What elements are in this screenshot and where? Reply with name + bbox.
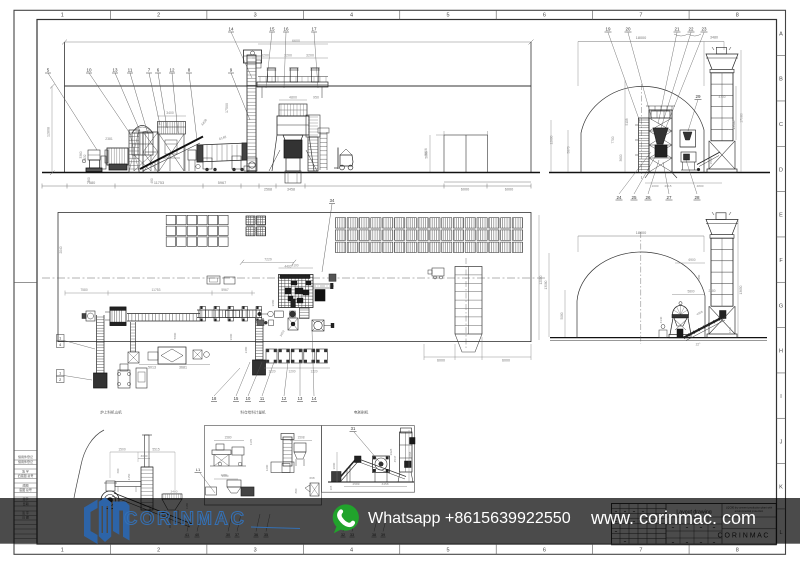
svg-text:11753: 11753	[152, 288, 161, 292]
svg-text:18000: 18000	[636, 231, 647, 235]
svg-text:26: 26	[645, 195, 651, 200]
svg-text:5967: 5967	[218, 181, 226, 185]
svg-text:3200: 3200	[306, 54, 314, 58]
svg-text:6000: 6000	[437, 359, 445, 363]
svg-text:7: 7	[639, 13, 642, 19]
svg-text:Whatsapp +8615639922550: Whatsapp +8615639922550	[368, 509, 571, 527]
svg-text:3480: 3480	[171, 490, 178, 494]
svg-text:20: 20	[625, 27, 631, 32]
svg-text:3: 3	[254, 548, 257, 554]
svg-text:31: 31	[351, 426, 356, 431]
svg-text:1: 1	[61, 548, 64, 554]
svg-text:3200: 3200	[261, 54, 269, 58]
svg-text:12800: 12800	[550, 135, 554, 144]
svg-text:7580: 7580	[80, 288, 88, 292]
svg-text:17: 17	[311, 27, 317, 32]
svg-text:底图: 底图	[22, 483, 28, 488]
svg-text:3: 3	[254, 13, 257, 19]
svg-text:签 字: 签 字	[22, 469, 29, 474]
svg-text:D: D	[779, 167, 783, 173]
svg-text:L1: L1	[196, 467, 201, 472]
svg-text:22°: 22°	[696, 343, 702, 347]
svg-text:1600: 1600	[222, 474, 229, 478]
svg-text:7: 7	[639, 548, 642, 554]
svg-text:3000: 3000	[332, 462, 336, 469]
svg-text:电耗刷机: 电耗刷机	[354, 410, 369, 415]
svg-text:13: 13	[112, 68, 118, 73]
svg-text:4547: 4547	[393, 455, 397, 462]
svg-text:17080: 17080	[740, 113, 744, 123]
svg-text:950: 950	[313, 96, 319, 100]
svg-text:14: 14	[228, 27, 234, 32]
svg-text:5: 5	[446, 13, 449, 19]
svg-text:5806: 5806	[424, 148, 428, 156]
svg-text:8: 8	[736, 548, 739, 554]
svg-text:22: 22	[688, 27, 694, 32]
svg-text:1500: 1500	[709, 157, 713, 164]
svg-text:7700: 7700	[611, 136, 615, 143]
svg-text:G: G	[779, 303, 783, 309]
svg-text:1220: 1220	[268, 370, 275, 374]
svg-text:18000: 18000	[636, 36, 647, 40]
svg-text:5108: 5108	[625, 118, 629, 125]
svg-text:1000: 1000	[652, 184, 659, 188]
svg-text:4800: 4800	[289, 96, 297, 100]
svg-text:16: 16	[283, 27, 289, 32]
svg-text:4150: 4150	[127, 473, 131, 480]
svg-text:借用件登记: 借用件登记	[18, 454, 33, 459]
svg-text:1508: 1508	[297, 436, 304, 440]
svg-text:25: 25	[631, 195, 637, 200]
svg-text:480: 480	[150, 178, 154, 184]
svg-text:6000: 6000	[502, 359, 510, 363]
svg-text:7229: 7229	[264, 258, 272, 262]
svg-text:2928: 2928	[389, 448, 393, 455]
svg-text:5800: 5800	[687, 290, 694, 294]
svg-text:6000: 6000	[461, 188, 469, 192]
svg-text:4: 4	[350, 13, 353, 19]
svg-text:5: 5	[446, 548, 449, 554]
svg-text:11753: 11753	[154, 181, 164, 185]
svg-text:3680: 3680	[271, 299, 275, 306]
svg-text:3458: 3458	[287, 188, 295, 192]
svg-text:B: B	[779, 77, 783, 83]
svg-text:17500: 17500	[225, 103, 229, 113]
svg-text:J: J	[780, 439, 783, 445]
svg-text:10: 10	[86, 68, 92, 73]
svg-text:1730: 1730	[728, 326, 732, 333]
svg-text:3030: 3030	[141, 454, 148, 458]
svg-text:1500: 1500	[118, 448, 126, 452]
svg-text:2040: 2040	[59, 246, 63, 253]
svg-text:3600: 3600	[229, 333, 233, 340]
svg-text:105: 105	[329, 485, 333, 490]
svg-text:12: 12	[169, 68, 175, 73]
svg-text:21: 21	[674, 27, 680, 32]
svg-text:2381: 2381	[105, 137, 113, 141]
svg-text:4340: 4340	[659, 316, 663, 323]
svg-text:11: 11	[260, 396, 265, 401]
svg-text:4700: 4700	[718, 95, 725, 99]
svg-text:11: 11	[128, 68, 133, 73]
svg-text:2: 2	[157, 13, 160, 19]
svg-text:27: 27	[666, 195, 672, 200]
svg-text:15: 15	[269, 27, 275, 32]
svg-text:底图 总号: 底图 总号	[19, 487, 32, 492]
svg-text:29: 29	[695, 94, 701, 99]
svg-text:1200: 1200	[265, 464, 269, 471]
svg-text:2480: 2480	[244, 346, 248, 353]
svg-text:K: K	[779, 485, 783, 491]
svg-text:28: 28	[694, 195, 700, 200]
svg-text:13080: 13080	[544, 280, 548, 289]
svg-text:7980: 7980	[697, 274, 701, 281]
svg-text:23: 23	[701, 27, 707, 32]
svg-text:1: 1	[61, 13, 64, 19]
svg-text:14: 14	[312, 396, 317, 401]
svg-text:E: E	[779, 213, 783, 219]
svg-text:3600: 3600	[619, 154, 623, 161]
svg-text:1220: 1220	[310, 370, 317, 374]
svg-text:1580: 1580	[224, 436, 231, 440]
svg-text:600: 600	[116, 468, 120, 473]
svg-text:6600: 6600	[292, 39, 300, 43]
svg-text:3400: 3400	[166, 111, 174, 115]
svg-text:24: 24	[616, 195, 622, 200]
svg-text:H: H	[779, 349, 783, 355]
svg-text:炉上料机山机: 炉上料机山机	[100, 410, 122, 415]
svg-text:C: C	[779, 122, 783, 128]
svg-text:12808: 12808	[47, 127, 51, 137]
svg-text:4: 4	[59, 343, 61, 347]
svg-text:2589: 2589	[353, 482, 360, 486]
svg-text:10: 10	[246, 396, 251, 401]
svg-text:5800: 5800	[173, 332, 177, 339]
svg-text:2480: 2480	[708, 289, 715, 293]
svg-text:6900: 6900	[688, 258, 695, 262]
svg-text:1170: 1170	[249, 439, 253, 446]
svg-text:13: 13	[298, 396, 303, 401]
svg-text:5870: 5870	[567, 146, 571, 153]
svg-text:www. corinmac. com: www. corinmac. com	[590, 508, 756, 528]
svg-text:1: 1	[59, 372, 61, 376]
svg-text:18: 18	[212, 396, 217, 401]
svg-text:6: 6	[543, 13, 546, 19]
svg-text:5888: 5888	[408, 451, 412, 458]
svg-text:12000: 12000	[539, 275, 543, 284]
svg-text:料仓给料计量机: 料仓给料计量机	[240, 410, 266, 415]
svg-text:3480: 3480	[710, 36, 718, 40]
svg-text:4800: 4800	[697, 184, 704, 188]
svg-text:3681: 3681	[179, 366, 187, 370]
svg-text:借用件登记: 借用件登记	[18, 459, 33, 464]
svg-text:2568: 2568	[264, 188, 272, 192]
svg-text:15: 15	[234, 396, 239, 401]
svg-text:A: A	[779, 31, 783, 37]
svg-text:13650: 13650	[739, 285, 743, 294]
svg-text:560: 560	[87, 177, 91, 183]
svg-text:8: 8	[736, 13, 739, 19]
svg-text:2: 2	[59, 378, 61, 382]
svg-text:698: 698	[309, 476, 314, 480]
svg-text:800: 800	[294, 488, 298, 493]
svg-text:1200: 1200	[288, 370, 295, 374]
svg-text:2: 2	[157, 548, 160, 554]
svg-text:5967: 5967	[221, 288, 229, 292]
svg-text:12: 12	[282, 396, 287, 401]
svg-text:5080: 5080	[560, 312, 564, 319]
svg-text:1135: 1135	[254, 314, 258, 321]
svg-text:3200: 3200	[284, 54, 292, 58]
svg-text:2915: 2915	[665, 184, 672, 188]
svg-text:5013: 5013	[148, 366, 156, 370]
svg-text:旧底图 总号: 旧底图 总号	[18, 473, 34, 478]
svg-text:19: 19	[605, 27, 611, 32]
svg-text:3132: 3132	[83, 154, 87, 161]
svg-text:4: 4	[350, 548, 353, 554]
svg-text:5515: 5515	[152, 448, 160, 452]
svg-text:CORINMAC: CORINMAC	[124, 508, 247, 529]
svg-text:4100: 4100	[291, 264, 298, 268]
svg-text:6000: 6000	[505, 188, 513, 192]
svg-text:6: 6	[543, 548, 546, 554]
svg-text:3458: 3458	[382, 482, 389, 486]
svg-text:13460: 13460	[732, 120, 736, 129]
svg-text:34: 34	[330, 198, 335, 203]
svg-text:1: 1	[59, 337, 61, 341]
